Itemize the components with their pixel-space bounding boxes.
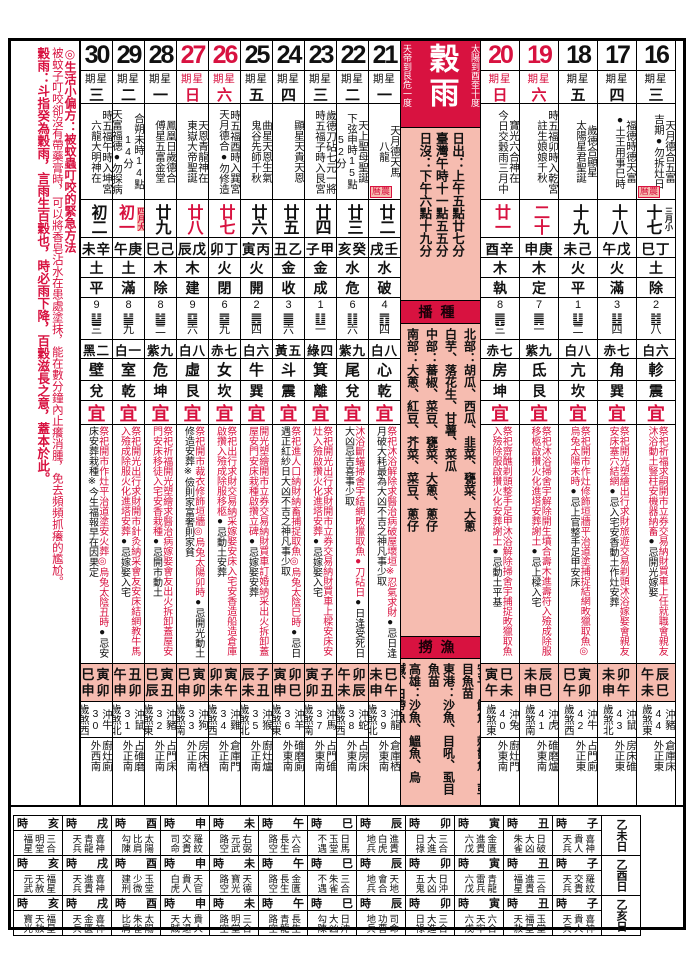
left-margin-notes: ◎生活小偏方：被蚊蟲叮咬的緊急方法 被蚊子叮咬卻沒有帶藥膏時，可以將香皂沾水在患… xyxy=(11,41,81,805)
hexagram-cell: 3䷣四 xyxy=(598,298,636,340)
fetus-god-direction: 外東南 xyxy=(313,738,325,774)
jianchu-officer: 危 xyxy=(337,278,368,298)
hour-stars: 福星進貴三合 xyxy=(504,871,552,896)
avoid-text: ●忌動土平基 xyxy=(490,546,501,607)
hour-header: 時巳 xyxy=(308,896,356,911)
day-column-18: 18期星五歲德合顯星太陽星君聖誕十九未己火平1䷒二白八亢坎宜祭祀開市作灶修飾垣牆… xyxy=(559,41,598,805)
hour-header: 時丑 xyxy=(504,856,552,871)
deity-lines: 寶光六合神在今日交穀雨三月中 xyxy=(481,104,519,199)
clash-animal-age: 沖蛇38 xyxy=(345,702,368,737)
suitable-avoid-text: 祭祀祈福開光塑繪求醫治病嫁娶會友出火拆卸蓋屋安門安床移徒入宅安香栽種●忌開市動土 xyxy=(150,426,170,662)
fetus-god-lines: 廚灶廁外西南 xyxy=(81,738,112,774)
lunar-date: 廿七 xyxy=(213,204,237,234)
sha-direction: 歲煞西 xyxy=(81,702,89,737)
jianchu-officer: 收 xyxy=(273,278,304,298)
fetus-god-place: 房床碓 xyxy=(624,738,636,774)
fetus-god-cell: 占房床外東南 xyxy=(337,738,368,774)
hour-stars: 不遇朱雀三合 xyxy=(308,871,356,896)
sha-direction: 歲煞北 xyxy=(369,702,377,737)
clash-lines: 沖豬44歲煞東 xyxy=(637,702,675,737)
hour-stars: 路空元武右弼 xyxy=(210,831,258,856)
fetus-god-direction: 外東南 xyxy=(345,738,357,774)
lunar-mansion: 亢 xyxy=(559,359,597,381)
five-element: 水 xyxy=(369,258,400,278)
suitable-avoid-cell: 祭祀開光塑繪出行求財旅遊交易剃頭沐浴嫁娶會親友安床塞穴結網●忌入宅安香動土作灶安… xyxy=(598,425,636,664)
hour-header: 時申 xyxy=(161,856,209,871)
hour-star: 貴人 xyxy=(192,914,202,933)
hour-stars: 路空青龍長生 xyxy=(259,911,307,935)
hour-branch: 辰 xyxy=(391,815,402,831)
lunar-date: 廿六 xyxy=(245,204,269,234)
sha-direction: 歲煞北 xyxy=(601,702,613,737)
suitable-header: 宜 xyxy=(520,401,558,425)
auspicious-hours-cell: 巳寅午卯 xyxy=(559,664,597,702)
hour-label: 時 xyxy=(507,855,518,871)
weekday: 二 xyxy=(113,85,144,104)
fetus-god-cell: 倉庫栖外東南 xyxy=(369,738,400,774)
hour-star: 喜神 xyxy=(584,914,594,933)
date-number: 26 xyxy=(209,41,240,71)
suitable-avoid-cell: 沐浴斷蟻掃舍宇結網畋獵取魚●刀砧日●日逢受死日大凶忌吉喜事少取 xyxy=(337,425,368,664)
clash-cell: 沖狗33歲煞南 xyxy=(177,702,208,738)
deity-lines: 天月德合五富吉期●勿拆灶日 xyxy=(637,104,675,199)
auspicious-hours-cell: 巳寅申卯 xyxy=(177,664,208,702)
hour-table-day-labels: 乙未日乙酉日乙亥日 xyxy=(602,816,640,935)
auspicious-hours-row: 申卯 xyxy=(177,683,207,699)
hour-label: 時 xyxy=(115,815,126,831)
date-number: 24 xyxy=(273,41,304,71)
hour-column-未: 時未路空元武右弼時未路空寶光天德時未路空明堂三合 xyxy=(210,816,259,935)
lunar-date: 廿三 xyxy=(341,204,365,234)
auspicious-hours-cell: 寅卯申巳 xyxy=(273,664,304,702)
deity-lines: 鳳凰日歲德合傅星五富金堂 xyxy=(145,104,176,199)
hexagram-icon: ䷾ xyxy=(650,312,662,326)
deity-festival-cell: 時五福午時入坤宮六龍大明神在 xyxy=(81,104,112,200)
hour-stars: 地兵功曹司命 xyxy=(357,911,405,935)
weekday-prefix: 期星 xyxy=(113,71,144,85)
sun-line: 日出：上午五點廿七分 xyxy=(449,128,465,300)
fishing-header: 撈漁 xyxy=(401,637,480,660)
hour-star: 進貴 xyxy=(388,834,398,853)
fetus-god-cell: 房床栖外正南 xyxy=(177,738,208,774)
fetus-god-cell: 占碓磨外正南 xyxy=(113,738,144,774)
lunar-mansion: 危 xyxy=(145,359,176,381)
fetus-god-lines: 占門廁外正東 xyxy=(559,738,597,774)
deity-line: 天月德合五富 xyxy=(664,104,675,199)
hour-header: 時未 xyxy=(210,816,258,831)
hour-star: 路空 xyxy=(218,834,228,853)
hour-star: 天兵 xyxy=(71,834,81,853)
fetus-god-direction: 外東南 xyxy=(496,738,508,774)
clash-animal-age: 沖虎41 xyxy=(535,702,558,737)
hour-stars: 六戊雷兵青龍 xyxy=(455,871,503,896)
hour-label: 時 xyxy=(164,895,175,911)
hexagram-number: 8 xyxy=(157,300,163,312)
sha-direction: 歲煞西 xyxy=(209,702,217,737)
lunar-mansion: 角 xyxy=(598,359,636,381)
hexagram-cn: 三 xyxy=(495,325,506,337)
hour-header: 時申 xyxy=(161,816,209,831)
deity-festival-cell: 顯星天貴天恩 xyxy=(273,104,304,200)
hour-label: 時 xyxy=(115,895,126,911)
lunar-month-note: 四月大 xyxy=(137,207,144,231)
hexagram-cell: 7䷫一 xyxy=(520,298,558,340)
deity-lines: 歲德合顯星太陽星君聖誕 xyxy=(559,104,597,199)
hour-star: 玉堂 xyxy=(535,914,545,933)
hour-branch: 子 xyxy=(587,895,598,911)
term-left-note: 太陽到酉奎十度 xyxy=(469,41,480,127)
auspicious-hours-row: 寅子 xyxy=(305,667,335,683)
lunar-mansion: 室 xyxy=(113,359,144,381)
fetus-god-cell: 廚灶爐外正南 xyxy=(241,738,272,774)
hour-stars: 日祿大進三合 xyxy=(406,911,454,935)
hour-star: 大凶 xyxy=(425,874,435,893)
hour-star: 三合 xyxy=(339,874,349,893)
hexagram-number: 8 xyxy=(497,300,503,312)
hour-branch: 巳 xyxy=(342,855,353,871)
lunar-date-cell: 廿三 xyxy=(337,200,368,238)
hour-star: 福星 xyxy=(22,834,32,853)
lunar-date: 廿八 xyxy=(181,204,205,234)
hour-star: 六戊 xyxy=(463,834,473,853)
hexagram-cell: 1䷒二 xyxy=(559,298,597,340)
auspicious-hours-row: 午丑 xyxy=(113,667,143,683)
sowing-header: 播種 xyxy=(401,301,480,324)
hour-branch: 子 xyxy=(587,855,598,871)
clash-animal-age: 沖羊36 xyxy=(281,702,304,737)
hour-stars: 路空長生金匱 xyxy=(259,871,307,896)
clash-animal-age: 沖猴35 xyxy=(249,702,272,737)
hour-branch: 寅 xyxy=(489,855,500,871)
suitable-avoid-text: 祭祀進人口納財納畜捕捉取魚◎烏兔太陰巳時●忌日遇正紅紗日大凶不吉之神凡事少取 xyxy=(278,426,298,662)
hour-branch: 卯 xyxy=(440,855,451,871)
clash-animal-age: 沖牛42 xyxy=(574,702,597,737)
hour-star: 長生 xyxy=(278,874,288,893)
deity-festival-cell: 天恩青龍神在東嶽大帝聖誕 xyxy=(177,104,208,200)
hexagram-cell: 3䷀六 xyxy=(273,298,304,340)
nine-star: 紫九 xyxy=(337,340,368,359)
lunar-date-cell: 廿二 xyxy=(369,200,400,238)
lunar-date: 十八 xyxy=(605,204,629,234)
nine-star: 白八 xyxy=(369,340,400,359)
lunar-mansion: 斗 xyxy=(273,359,304,381)
lunar-mansion: 壁 xyxy=(81,359,112,381)
hour-column-申: 時申司命交貴羅紋時申白虎貴人天官時申天賊大退貴人 xyxy=(161,816,210,935)
hour-label: 時 xyxy=(262,815,273,831)
hour-star: 三合 xyxy=(535,874,545,893)
lunar-date-cell: 廿九 xyxy=(145,200,176,238)
suitable-avoid-cell: 祭祀開光出行求財開市立券交易納財買車上樑安床安灶入殮啟攢火化進塔安葬●忌嫁娶入宅 xyxy=(305,425,336,664)
hexagram-icon: ䷠ xyxy=(494,312,506,326)
hour-star: 日破 xyxy=(535,834,545,853)
fetus-god-cell: 占門廁外正東 xyxy=(559,738,597,774)
fetus-god-direction: 外正南 xyxy=(121,738,133,774)
day-column-21: 21期星一天月德天馬八龍曆農廿二戌壬水破4䷓四白八心乾宜祭祀沐浴解除求醫治病破屋… xyxy=(369,41,401,805)
weekday-prefix: 期星 xyxy=(598,71,636,85)
hour-column-午: 時午路空長生六合時午路空長生金匱時午路空青龍長生 xyxy=(259,816,308,935)
trigram: 巽 xyxy=(241,381,272,401)
fetus-god-direction: 外正南 xyxy=(185,738,197,774)
hour-stars: 天兵金匱喜神 xyxy=(63,911,111,935)
fetus-god-cell: 倉庫床外正東 xyxy=(637,738,675,774)
hour-star: 喜神 xyxy=(94,834,104,853)
weekday: 日 xyxy=(481,85,519,104)
hour-stars: 路空明堂三合 xyxy=(210,911,258,935)
hour-star: 明堂 xyxy=(33,834,43,853)
weekday-prefix: 期星 xyxy=(337,71,368,85)
trigram: 巽 xyxy=(598,381,636,401)
hour-star: 六合 xyxy=(290,834,300,853)
suitable-avoid-text: 祭祀出行求財交易納采嫁娶安床入宅安香造船造倉庫啟攢入殮成除服移柩●忌動土安葬 xyxy=(214,426,234,662)
deity-festival-cell: 合朔未時14點14分天富福德●勿探病 xyxy=(113,104,144,200)
lunar-date-cell: 十九 xyxy=(559,200,597,238)
deity-line: 時五福午時入坤宮 xyxy=(101,104,112,199)
weekday-prefix: 期星 xyxy=(177,71,208,85)
date-number: 18 xyxy=(559,41,597,71)
hour-label: 時 xyxy=(66,815,77,831)
auspicious-hours-cell: 未卯申午 xyxy=(598,664,636,702)
sowing-line: 中部：蕃椒、菜豆、甕菜、大蔥、蔥仔 xyxy=(422,324,441,636)
hour-star: 右弼 xyxy=(241,834,251,853)
hour-star: 天兵 xyxy=(561,834,571,853)
hour-stars: 日祿大進三合 xyxy=(406,831,454,856)
hour-column-丑: 時丑朱雀大凶日破時丑福星進貴三合時丑天赦福星玉堂 xyxy=(504,816,553,935)
hexagram-cn: 六 xyxy=(187,325,198,337)
deity-line: 顯星天貴天恩 xyxy=(293,104,304,199)
hour-branch: 巳 xyxy=(342,815,353,831)
hour-branch: 卯 xyxy=(440,815,451,831)
trigram: 兌 xyxy=(81,381,112,401)
hexagram-icon: ䷌ xyxy=(251,312,263,326)
hour-branch: 申 xyxy=(195,895,206,911)
hour-star: 白虎 xyxy=(169,874,179,893)
fetus-god-place: 倉庫門 xyxy=(228,738,240,774)
hour-star: 金匱 xyxy=(290,874,300,893)
hour-stars: 元武天赦福星 xyxy=(14,871,62,896)
hexagram-number: 6 xyxy=(349,300,355,312)
clash-animal-age: 沖兔40 xyxy=(496,702,519,737)
trigram: 艮 xyxy=(520,381,558,401)
day-column-24: 24期星四顯星天貴天恩廿五丑乙金收3䷀六黃五斗震宜祭祀進人口納財納畜捕捉取魚◎烏… xyxy=(273,41,305,805)
hour-star: 大進 xyxy=(425,834,435,853)
sha-direction: 歲煞東 xyxy=(273,702,281,737)
nine-star: 赤七 xyxy=(481,340,519,359)
ganzhi: 子甲 xyxy=(305,238,336,258)
day-column-23: 23期星三歲德刀砧七元一將時五福子時入艮宮廿四子甲金成1䷗一綠四箕離宜祭祀開光出… xyxy=(305,41,337,805)
hour-star: 福星 xyxy=(45,914,55,933)
suitable-avoid-text: 祭祀開光出行求財開市立券交易納財買車上樑安床安灶入殮啟攢火化進塔安葬●忌嫁娶入宅 xyxy=(310,426,330,662)
clash-lines: 沖牛30歲煞西 xyxy=(81,702,112,737)
hour-header: 時亥 xyxy=(14,896,62,911)
fetus-god-place: 占門廁 xyxy=(585,738,597,774)
hexagram-number: 1 xyxy=(575,300,581,312)
hour-star: 進貴 xyxy=(474,834,484,853)
deity-line: 時五福卯時入乾宮 xyxy=(547,104,558,199)
hour-star: 羅紋 xyxy=(192,834,202,853)
lunar-date-cell: 廿一 xyxy=(481,200,519,238)
fetus-god-direction: 外正東 xyxy=(652,738,664,774)
hour-star: 喜神 xyxy=(94,874,104,893)
hour-star: 日馬 xyxy=(339,834,349,853)
hour-stars: 天兵貴人喜神 xyxy=(553,831,601,856)
deity-line: 八龍 xyxy=(378,104,389,199)
lunar-mansion: 虛 xyxy=(177,359,208,381)
sowing-line: 北部：胡瓜、西瓜、韭菜、甕菜、大蔥 xyxy=(460,324,479,636)
suitable-avoid-text: 沐浴斷蟻掃舍宇結網畋獵取魚●刀砧日●日逢受死日大凶忌吉喜事少取 xyxy=(342,426,362,662)
deity-lines: 天恩青龍神在東嶽大帝聖誕 xyxy=(177,104,208,199)
clash-lines: 沖狗33歲煞南 xyxy=(177,702,208,737)
hour-star: 進貴 xyxy=(523,874,533,893)
hour-star: 大進 xyxy=(425,914,435,933)
hour-table-day-label: 乙未日 xyxy=(613,819,629,852)
hour-branch: 寅 xyxy=(489,815,500,831)
ganzhi: 未辛 xyxy=(81,238,112,258)
deity-lines: 顯星天貴天恩 xyxy=(273,104,304,199)
lunar-date: 初一 xyxy=(113,204,136,234)
deity-line: 歲德刀砧七元一將 xyxy=(325,104,336,199)
suitable-text: 沐浴斷蟻掃舍宇結網畋獵取魚●刀砧日 xyxy=(353,426,364,597)
fetus-god-place: 占房床 xyxy=(356,738,368,774)
clash-cell: 沖牛42歲煞西 xyxy=(559,702,597,738)
lunar-date: 廿二 xyxy=(373,204,397,234)
five-element: 火 xyxy=(241,258,272,278)
lunar-date-cell: 廿七 xyxy=(209,200,240,238)
hour-star: 寶光 xyxy=(22,914,32,933)
clash-lines: 沖牛42歲煞西 xyxy=(559,702,597,737)
suitable-avoid-cell: 祭祀祈福開光塑繪求醫治病嫁娶會友出火拆卸蓋屋安門安床移徒入宅安香栽種●忌開市動土 xyxy=(145,425,176,664)
hour-star: 天官 xyxy=(192,874,202,893)
fetus-god-place: 廚灶爐 xyxy=(260,738,272,774)
fetus-god-place: 占碓磨 xyxy=(132,738,144,774)
hour-label: 時 xyxy=(507,815,518,831)
almanac-page-frame: ◎生活小偏方：被蚊蟲叮咬的緊急方法 被蚊子叮咬卻沒有帶藥膏時，可以將香皂沾水在患… xyxy=(8,38,686,930)
auspicious-hours-row: 巳寅 xyxy=(81,667,111,683)
suitable-header: 宜 xyxy=(209,401,240,425)
fetus-god-cell: 碓磨爐外東南 xyxy=(520,738,558,774)
clash-lines: 沖豬32歲煞東 xyxy=(145,702,176,737)
weekday-prefix: 期星 xyxy=(520,71,558,85)
weekday-prefix: 期星 xyxy=(481,71,519,85)
hexagram-cn: 二 xyxy=(155,325,166,337)
date-number: 28 xyxy=(145,41,176,71)
fishing-line: 高雄：沙魚、鰮魚、烏鰔、白帶魚 xyxy=(401,659,424,805)
avoid-text: ●忌上官整手足甲安床 xyxy=(568,486,579,587)
five-element: 土 xyxy=(637,258,675,278)
deity-lines: 合朔未時14點14分天富福德●勿探病 xyxy=(113,104,144,199)
hour-header: 時午 xyxy=(259,856,307,871)
hour-label: 時 xyxy=(311,895,322,911)
hour-star: 路空 xyxy=(218,874,228,893)
hour-label: 時 xyxy=(17,855,28,871)
fetus-god-place: 碓磨爐 xyxy=(546,738,558,774)
nine-star: 白六 xyxy=(637,340,675,359)
fishing-line: 東港：沙魚、目吼、虱目魚苗 xyxy=(424,659,458,805)
hour-star: 大退 xyxy=(180,914,190,933)
hour-header: 時卯 xyxy=(406,856,454,871)
auspicious-hours-cell: 寅巳午未 xyxy=(481,664,519,702)
sha-direction: 歲煞南 xyxy=(523,702,535,737)
date-number: 22 xyxy=(337,41,368,71)
suitable-header: 宜 xyxy=(81,401,112,425)
fetus-god-lines: 房床栖外正南 xyxy=(177,738,208,774)
lunar-mansion: 女 xyxy=(209,359,240,381)
hour-branch: 卯 xyxy=(440,895,451,911)
hour-label: 時 xyxy=(164,815,175,831)
hour-star: 玉堂 xyxy=(327,834,337,853)
hexagram-cell: 1䷗一 xyxy=(305,298,336,340)
auspicious-hours-row: 未午 xyxy=(209,683,239,699)
deity-festival-cell: 寶光六合神在今日交穀雨三月中 xyxy=(481,104,519,200)
hour-star: 三合 xyxy=(437,914,447,933)
clash-cell: 沖牛30歲煞西 xyxy=(81,702,112,738)
trigram: 艮 xyxy=(177,381,208,401)
hour-label: 時 xyxy=(213,895,224,911)
fetus-god-direction: 外正東 xyxy=(613,738,625,774)
jianchu-officer: 建 xyxy=(177,278,208,298)
hour-star: 天兵 xyxy=(561,914,571,933)
clash-cell: 沖鼠43歲煞北 xyxy=(598,702,636,738)
clash-animal-age: 沖豬32 xyxy=(153,702,176,737)
fetus-god-lines: 倉庫床外正東 xyxy=(637,738,675,774)
hexagram-cell: 9䷙六 xyxy=(177,298,208,340)
sha-direction: 歲煞北 xyxy=(241,702,249,737)
sha-direction: 歲煞東 xyxy=(145,702,153,737)
hour-label: 時 xyxy=(458,895,469,911)
deity-line: 鳳凰日歲德合 xyxy=(165,104,176,199)
hour-column-寅: 時寅六戊進貴金匱時寅六戊雷兵青龍時寅六戊天牢六合 xyxy=(455,816,504,935)
deity-line: 天月德天馬 xyxy=(389,104,400,199)
hour-column-亥: 時亥福星明堂三合時亥元武天赦福星時亥寶光天赦福星 xyxy=(14,816,63,935)
jianchu-officer: 閉 xyxy=(209,278,240,298)
sha-direction: 歲煞北 xyxy=(113,702,121,737)
hexagram-icon: ䷓ xyxy=(379,312,391,326)
suitable-avoid-text: 祭祀齋醮剃頭整手足甲沐浴解除掃舍宇捕捉畋獵取魚入殮除服啟攢火化安葬謝土●忌動土平… xyxy=(490,426,510,662)
hour-header: 時寅 xyxy=(455,816,503,831)
hexagram-number: 7 xyxy=(536,300,542,312)
date-number: 29 xyxy=(113,41,144,71)
deity-festival-cell: 天月德合五富吉期●勿拆灶日曆農 xyxy=(637,104,675,200)
auspicious-hours-row: 申午 xyxy=(602,683,632,699)
hour-label: 時 xyxy=(360,895,371,911)
fetus-god-lines: 房床碓外正東 xyxy=(598,738,636,774)
hour-star: 長生 xyxy=(278,834,288,853)
hour-stars: 六戊天牢六合 xyxy=(455,911,503,935)
date-number: 19 xyxy=(520,41,558,71)
fetus-god-lines: 占門床外正南 xyxy=(145,738,176,774)
hour-star: 福星 xyxy=(512,874,522,893)
hour-stars: 天兵青龍喜神 xyxy=(63,831,111,856)
hour-star: 勾陳 xyxy=(316,914,326,933)
hexagram-number: 4 xyxy=(381,300,387,312)
trigram: 震 xyxy=(637,381,675,401)
hour-column-巳: 時巳不遇玉堂日馬時巳不遇朱雀三合時巳勾陳大凶日沖 xyxy=(308,816,357,935)
fetus-god-lines: 占碓磨外正南 xyxy=(113,738,144,774)
fetus-god-lines: 廚灶門外東南 xyxy=(481,738,519,774)
suitable-text: 祭祀沐浴解除求醫治病破屋壞垣※忍氣求財 xyxy=(385,426,396,617)
hour-star: 比肩 xyxy=(131,834,141,853)
auspicious-hours-cell: 寅子卯丑 xyxy=(305,664,336,702)
clash-animal-age: 沖馬37 xyxy=(313,702,336,737)
jianchu-officer: 平 xyxy=(81,278,112,298)
sun-line: 臺灣午時十一點五五分 xyxy=(432,128,448,300)
suitable-avoid-text: 祭祀沐浴解除求醫治病破屋壞垣※忍氣求財●忌日逢月破大耗最為大凶不吉之神凡事少取 xyxy=(374,426,394,662)
lunar-date: 廿五 xyxy=(277,204,301,234)
fetus-god-lines: 碓磨廁外東南 xyxy=(273,738,304,774)
clash-animal-age: 沖鼠43 xyxy=(613,702,636,737)
weekday: 六 xyxy=(520,85,558,104)
hour-header: 時亥 xyxy=(14,816,62,831)
solar-term-box: 天帝到艮危一度 穀雨 太陽到酉奎十度 xyxy=(401,41,480,128)
